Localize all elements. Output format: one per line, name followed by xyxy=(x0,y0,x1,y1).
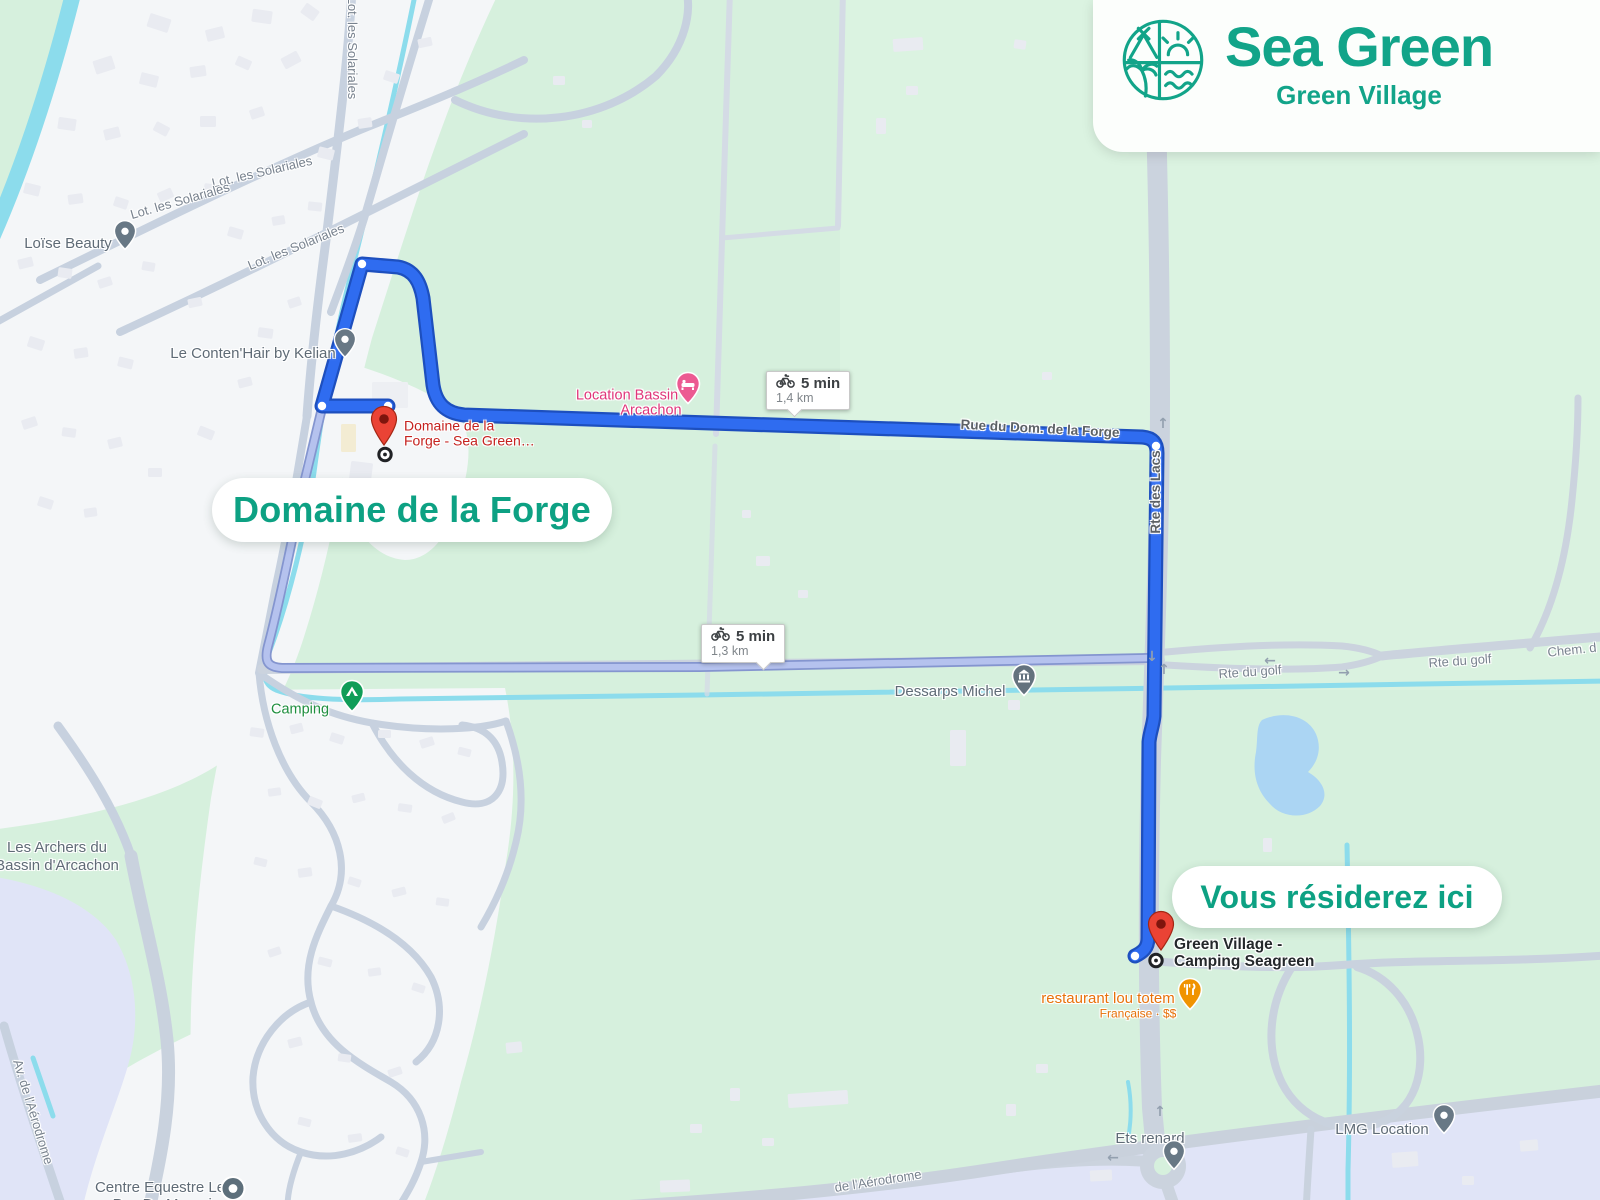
sea-green-logo-icon xyxy=(1119,16,1207,104)
brand-subtitle: Green Village xyxy=(1276,80,1442,111)
callout-pill-origin: Domaine de la Forge xyxy=(212,478,612,542)
brand-card: Sea Green Green Village xyxy=(1093,0,1600,152)
callout-pill-text: Domaine de la Forge xyxy=(233,489,591,531)
brand-title: Sea Green xyxy=(1225,16,1493,78)
route-map-screenshot: ↓↑←→←↑↑ Lot. les SolarialesLot. les Sola… xyxy=(0,0,1600,1200)
callout-pill-text: Vous résiderez ici xyxy=(1200,879,1473,916)
callout-pills-layer: Domaine de la ForgeVous résiderez ici xyxy=(0,0,1600,1200)
callout-pill-destination: Vous résiderez ici xyxy=(1172,866,1502,928)
